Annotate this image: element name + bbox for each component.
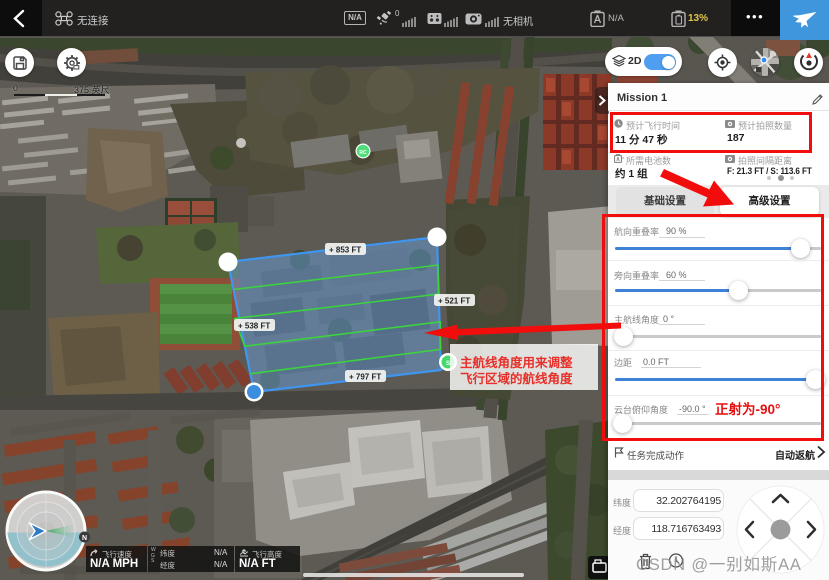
svg-text:+ 797 FT: + 797 FT bbox=[349, 373, 381, 382]
svg-text:+ 853 FT: + 853 FT bbox=[329, 246, 361, 255]
svg-text:+ 521 FT: + 521 FT bbox=[438, 297, 470, 306]
svg-text:N: N bbox=[82, 535, 87, 542]
svg-text:RC: RC bbox=[359, 150, 367, 156]
svg-text:+ 538 FT: + 538 FT bbox=[238, 322, 270, 331]
